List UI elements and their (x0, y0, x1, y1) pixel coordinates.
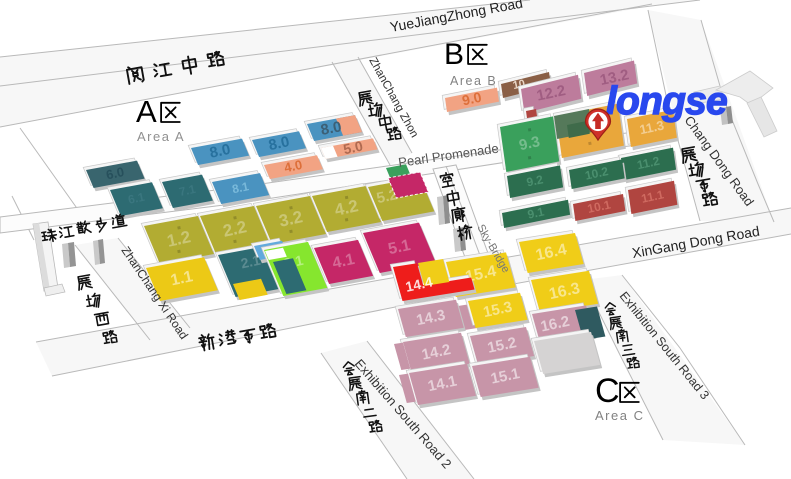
svg-text:C: C (595, 372, 620, 410)
svg-text:Area C: Area C (595, 408, 644, 423)
svg-text:longse: longse (606, 80, 727, 123)
svg-text:A: A (136, 94, 157, 129)
svg-text:B: B (444, 38, 464, 71)
svg-text:Area A: Area A (137, 129, 185, 144)
svg-text:Area B: Area B (450, 74, 497, 88)
